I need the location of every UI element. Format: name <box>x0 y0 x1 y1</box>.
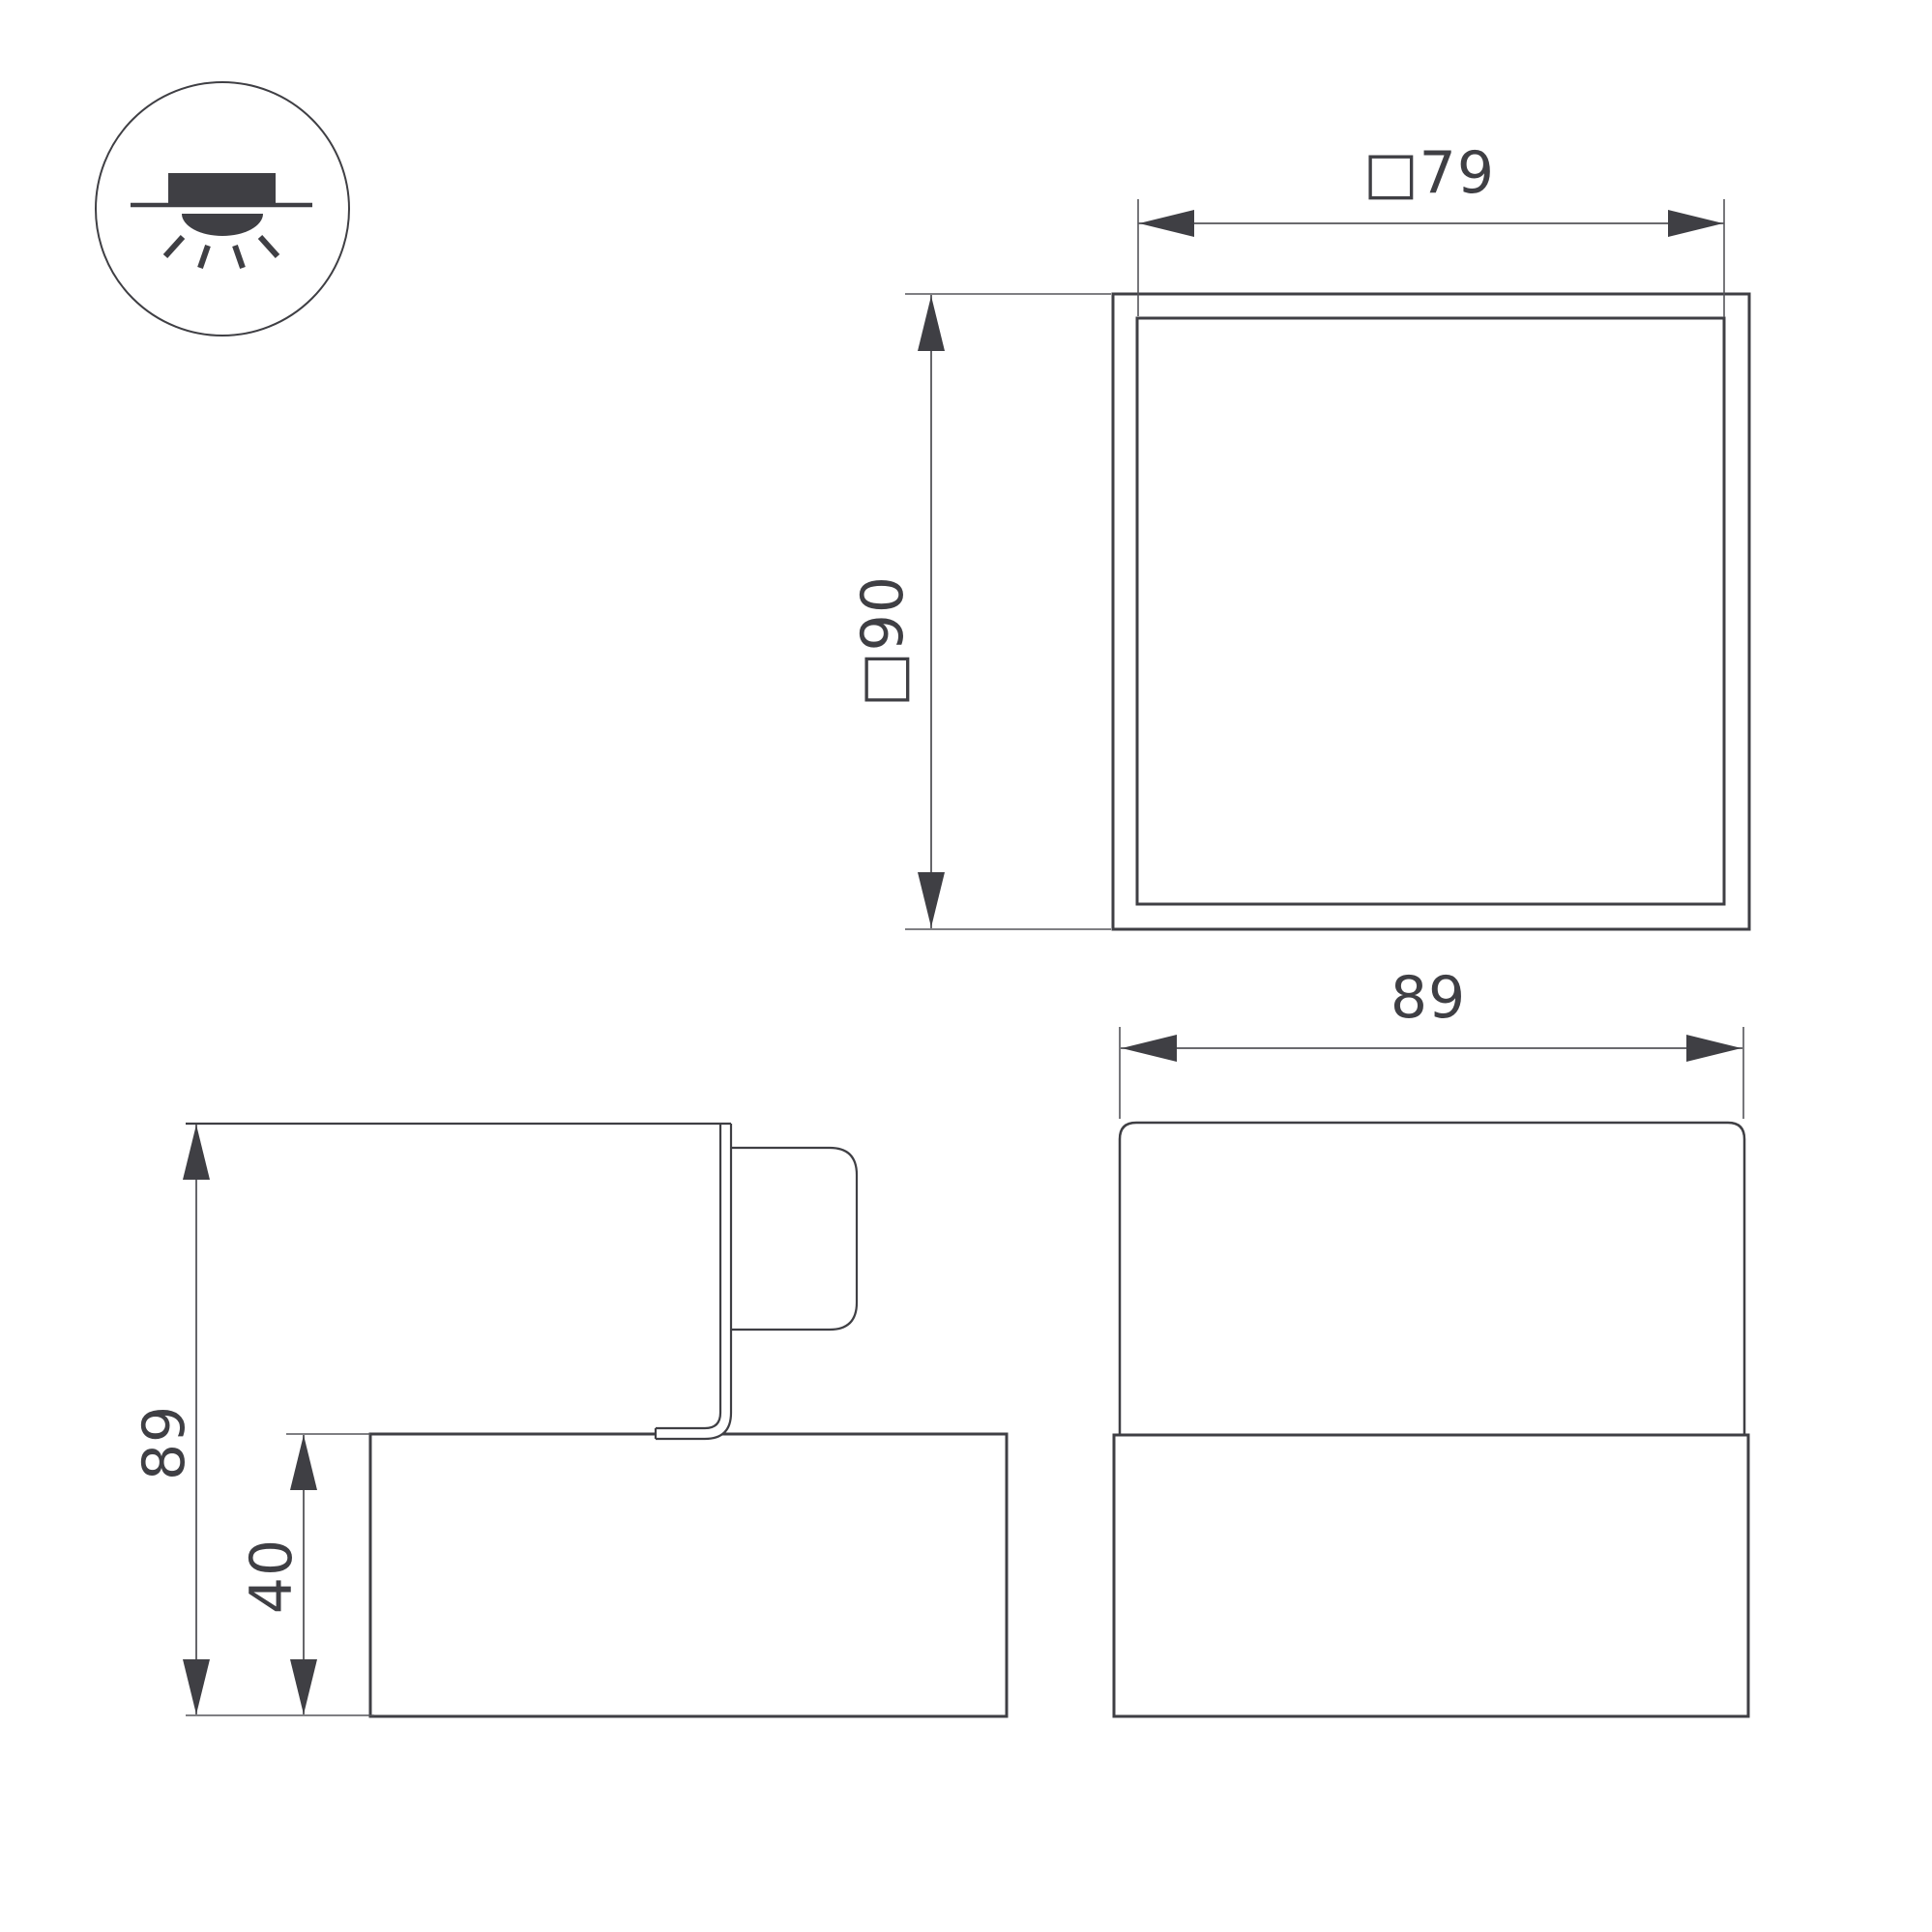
arrowhead-right <box>1686 1035 1742 1062</box>
arrowhead-left <box>1139 210 1194 237</box>
arrowhead-left <box>1122 1035 1177 1062</box>
arrowhead-up <box>290 1435 317 1490</box>
bracket-inner-edge <box>656 1124 720 1428</box>
side-body-height-dimension: 40 <box>238 1434 370 1714</box>
plan-height-dimension: □90 <box>849 294 1111 929</box>
plan-width-label: □79 <box>1363 139 1495 207</box>
side-driver-box <box>731 1148 857 1330</box>
plan-height-label: □90 <box>849 575 917 707</box>
side-body-height-label: 40 <box>238 1538 306 1614</box>
fixture-body-glyph <box>168 173 276 204</box>
arrowhead-up <box>183 1125 210 1180</box>
front-view: 89 <box>1114 964 1748 1716</box>
arrowhead-right <box>1668 210 1723 237</box>
plan-view: □79 □90 <box>849 139 1749 929</box>
front-width-label: 89 <box>1390 964 1466 1032</box>
side-body <box>370 1434 1007 1716</box>
dimension-drawing: □79 □90 89 <box>0 0 1932 1932</box>
side-height-label: 89 <box>131 1405 198 1480</box>
icon-circle <box>96 82 349 336</box>
plan-inner-square <box>1137 318 1724 904</box>
mount-type-icon <box>96 82 349 336</box>
arrowhead-down <box>290 1659 317 1714</box>
front-body <box>1114 1435 1748 1716</box>
plan-width-dimension: □79 <box>1138 139 1724 317</box>
front-upper-shade <box>1120 1123 1744 1435</box>
lamp-dome-glyph <box>182 214 263 236</box>
side-view: 89 40 <box>131 1124 1007 1716</box>
side-height-dimension: 89 <box>131 1125 374 1715</box>
technical-drawing-page: □79 □90 89 <box>0 0 1932 1932</box>
arrowhead-down <box>918 872 945 927</box>
light-rays-icon <box>165 237 278 268</box>
arrowhead-up <box>918 296 945 351</box>
front-width-dimension: 89 <box>1120 964 1743 1119</box>
arrowhead-down <box>183 1659 210 1714</box>
